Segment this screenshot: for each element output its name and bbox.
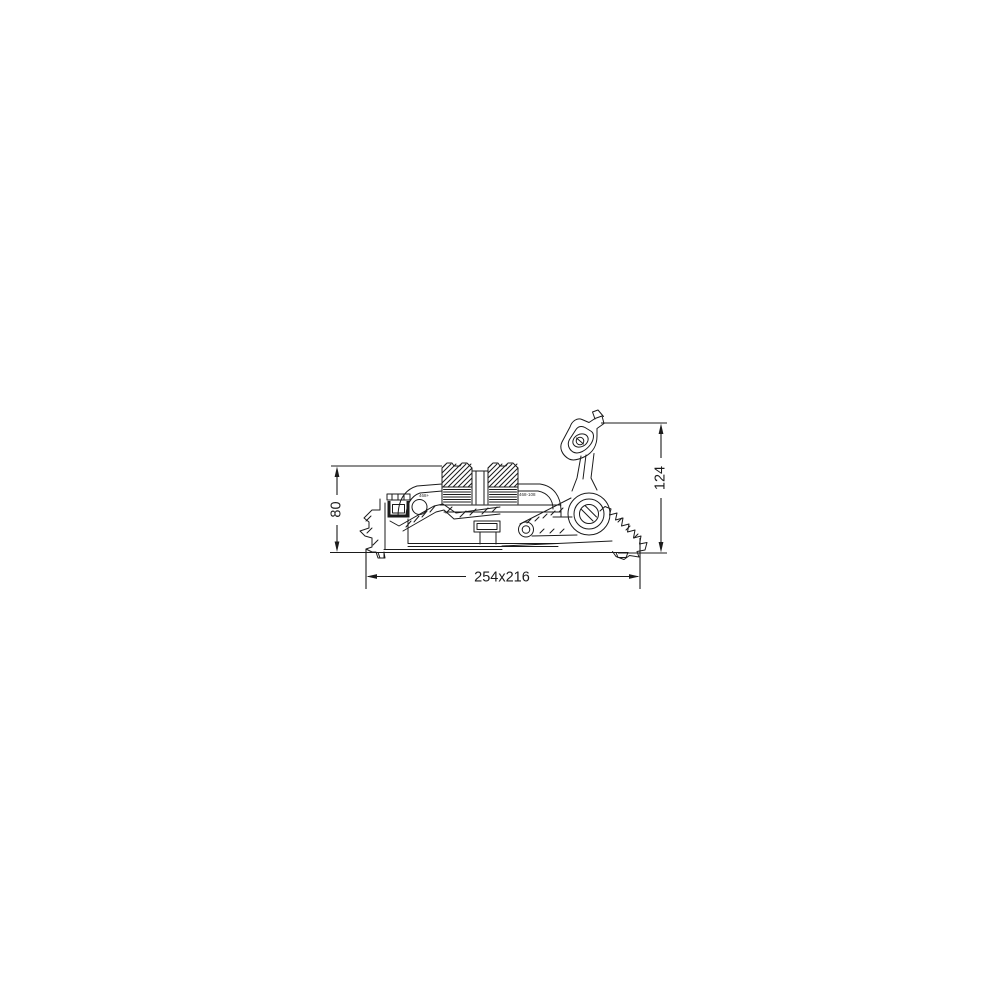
left-end-cap (360, 499, 385, 558)
dimfoot-arrow-left (367, 574, 378, 579)
dimfoot-label: 254x216 (474, 570, 530, 586)
bracket-inner (568, 426, 593, 452)
part-cross-section: 468+ 468-108 (360, 410, 647, 560)
roller-circle (412, 500, 427, 515)
block-left-spring-lines (444, 490, 471, 503)
pivot-mid-circle (574, 499, 604, 529)
dim80-arrow-up (335, 467, 340, 478)
center-block-inner (477, 524, 497, 530)
center-block-outer (474, 521, 500, 532)
upper-arm-left-edge (572, 456, 581, 491)
arm-lower-edge (532, 535, 577, 536)
block-left-hatch (442, 464, 472, 487)
part-stamp-right: 468-108 (519, 492, 536, 497)
page: 468+ 468-108 80 124 254x216 (0, 0, 1000, 1000)
dim124-arrow-up (659, 424, 664, 435)
hatch-block-right (488, 463, 518, 504)
dim80-label: 80 (329, 501, 345, 517)
block-right-spring-lines (490, 490, 517, 503)
dim80-arrow-down (335, 542, 340, 553)
bracket-screw-slot (577, 438, 584, 444)
center-stem (480, 532, 496, 544)
dim124-arrow-down (659, 542, 664, 553)
arm-end-hole (522, 526, 530, 534)
dimfoot-arrow-right (629, 574, 640, 579)
part-stamp-left: 468+ (419, 493, 430, 498)
block-right-hatch (488, 464, 518, 487)
hatch-block-left (442, 463, 472, 504)
block-bridge (472, 471, 488, 504)
upper-arm-mid-line (583, 455, 586, 479)
pivot-boss (568, 493, 610, 535)
dim124-label: 124 (653, 466, 669, 490)
upper-arm-right-edge (591, 454, 597, 491)
center-block-stem (474, 521, 500, 544)
gasket-lid (387, 494, 410, 500)
technical-drawing: 468+ 468-108 80 124 254x216 (0, 0, 1000, 1000)
arm-end-outer-circle (519, 522, 534, 537)
right-cap-hatch (618, 518, 638, 538)
pivot-slot (582, 506, 597, 522)
upper-arm (572, 454, 597, 492)
arm-upper-edge (520, 498, 571, 524)
pivot-inner-circle (580, 505, 599, 524)
top-bracket (561, 410, 604, 460)
bottom-inner-edge (384, 541, 612, 550)
slide-rail (440, 505, 561, 512)
